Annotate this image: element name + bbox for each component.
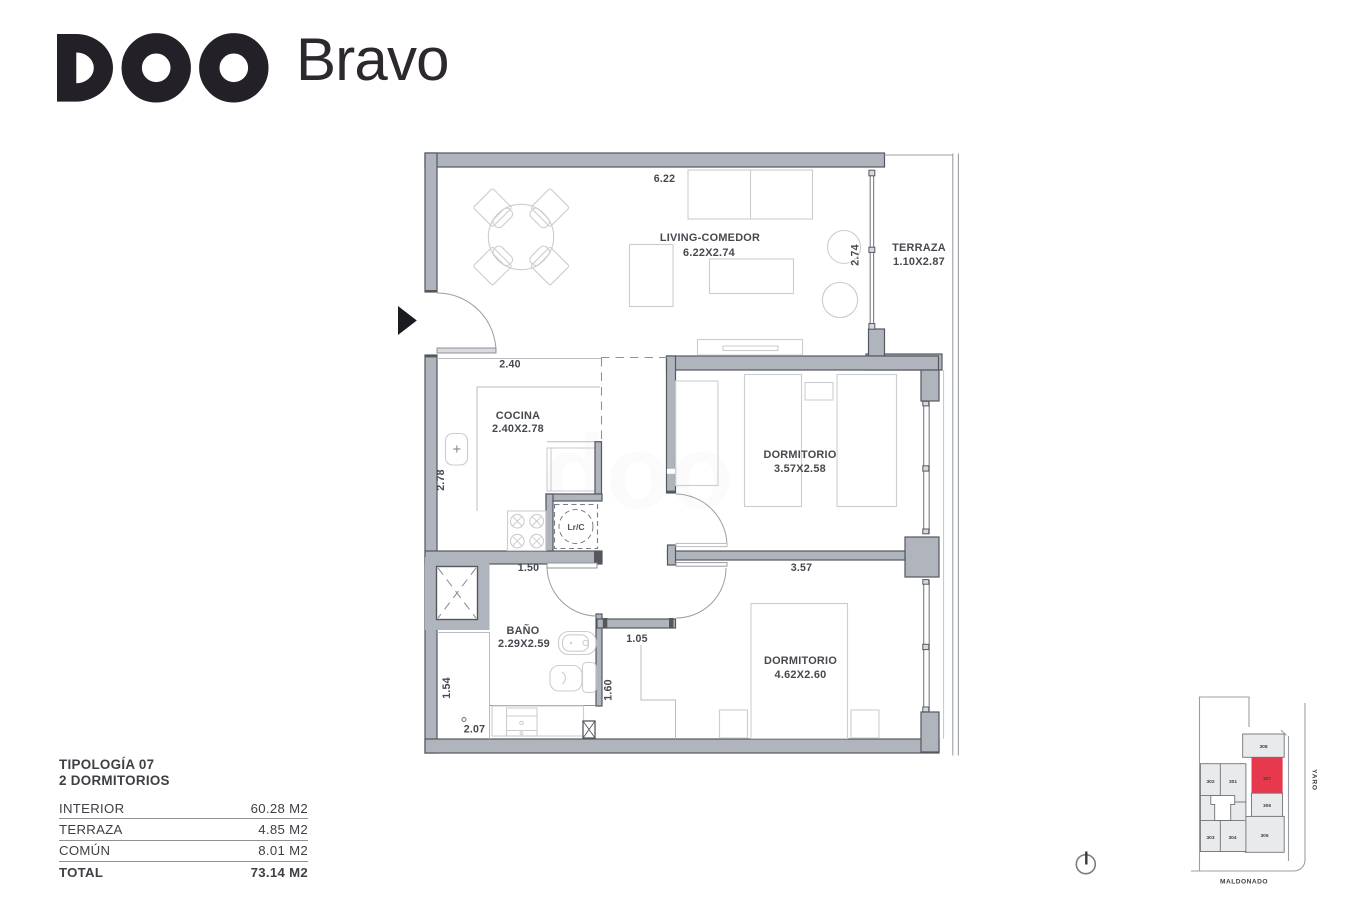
svg-text:6.22X2.74: 6.22X2.74 xyxy=(683,247,735,259)
svg-text:6.22: 6.22 xyxy=(654,173,675,185)
svg-text:1.54: 1.54 xyxy=(441,677,453,698)
svg-text:1.10X2.87: 1.10X2.87 xyxy=(893,256,945,268)
svg-text:304: 304 xyxy=(1228,835,1236,841)
svg-text:COCINA: COCINA xyxy=(496,410,540,422)
svg-text:305: 305 xyxy=(1260,833,1268,839)
svg-text:303: 303 xyxy=(1206,835,1214,841)
svg-text:2.40X2.78: 2.40X2.78 xyxy=(492,423,544,435)
svg-text:2.07: 2.07 xyxy=(464,724,485,736)
svg-text:3.57: 3.57 xyxy=(791,562,812,574)
svg-text:2.40: 2.40 xyxy=(499,359,520,371)
svg-text:Lr/C: Lr/C xyxy=(567,522,584,532)
svg-text:1.50: 1.50 xyxy=(518,562,539,574)
svg-text:BAÑO: BAÑO xyxy=(506,624,539,637)
svg-text:DORMITORIO: DORMITORIO xyxy=(764,655,837,667)
svg-text:LIVING-COMEDOR: LIVING-COMEDOR xyxy=(660,232,760,244)
svg-text:308: 308 xyxy=(1259,744,1267,750)
svg-text:TERRAZA: TERRAZA xyxy=(892,242,946,254)
svg-text:1.05: 1.05 xyxy=(626,633,647,645)
svg-text:301: 301 xyxy=(1229,779,1237,785)
svg-text:3.57X2.58: 3.57X2.58 xyxy=(774,463,826,475)
svg-text:2.78: 2.78 xyxy=(435,469,447,490)
svg-text:DORMITORIO: DORMITORIO xyxy=(763,449,836,461)
svg-text:307: 307 xyxy=(1263,776,1271,782)
svg-text:4.62X2.60: 4.62X2.60 xyxy=(775,669,827,681)
svg-text:YARO: YARO xyxy=(1311,769,1318,791)
svg-text:302: 302 xyxy=(1206,779,1214,785)
svg-text:MALDONADO: MALDONADO xyxy=(1220,879,1268,886)
svg-text:2.74: 2.74 xyxy=(850,244,862,265)
svg-text:2.29X2.59: 2.29X2.59 xyxy=(498,638,550,650)
svg-text:1.60: 1.60 xyxy=(603,679,615,700)
svg-text:306: 306 xyxy=(1263,803,1271,809)
